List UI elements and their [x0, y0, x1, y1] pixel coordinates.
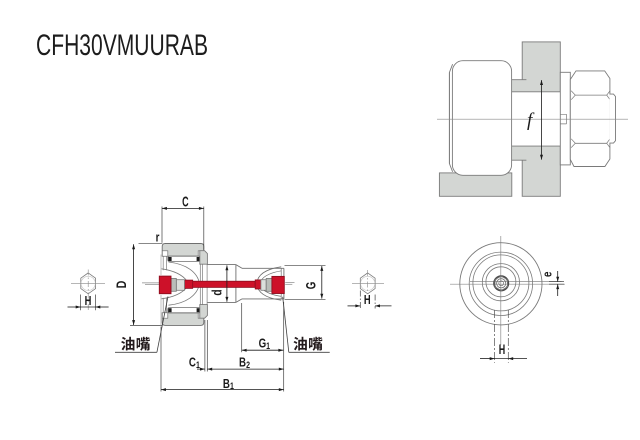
svg-text:e: e	[541, 272, 554, 277]
svg-text:H: H	[364, 294, 371, 308]
svg-text:D: D	[114, 281, 130, 289]
svg-text:H: H	[85, 295, 92, 309]
svg-text:CFH30VMUURAB: CFH30VMUURAB	[36, 29, 208, 62]
svg-text:B1: B1	[223, 378, 234, 392]
svg-text:G: G	[304, 282, 319, 290]
svg-text:B2: B2	[239, 356, 250, 370]
svg-text:r: r	[156, 231, 160, 245]
svg-text:C1: C1	[189, 356, 200, 370]
svg-text:C: C	[182, 193, 189, 210]
svg-text:G1: G1	[259, 338, 271, 352]
svg-text:d: d	[209, 289, 225, 295]
svg-text:H: H	[499, 342, 505, 357]
